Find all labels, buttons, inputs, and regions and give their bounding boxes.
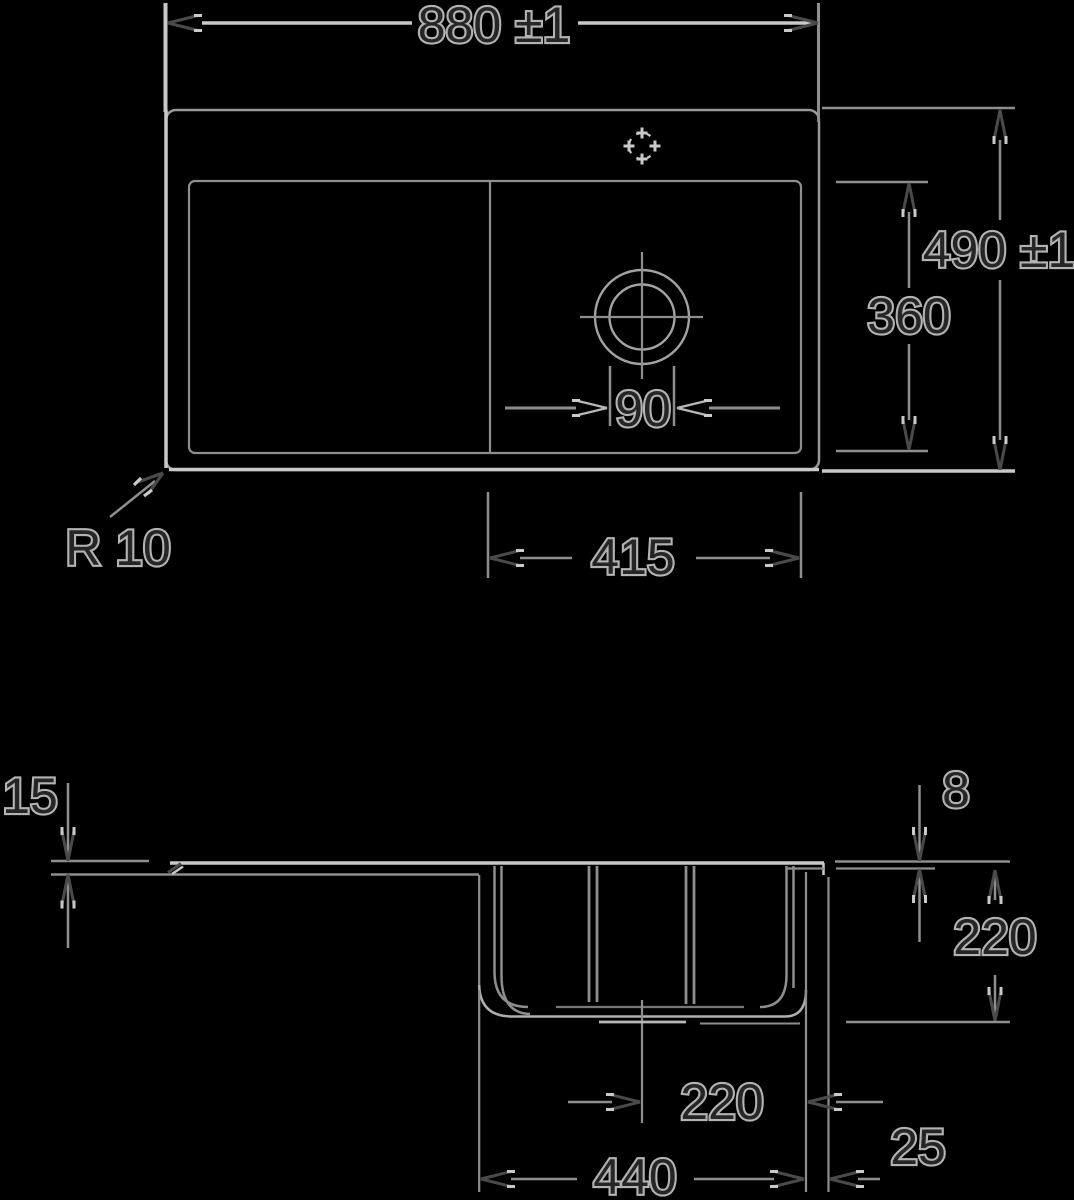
svg-text:880 ±1: 880 ±1 (418, 0, 571, 53)
svg-text:220: 220 (953, 909, 1036, 965)
svg-text:440: 440 (593, 1149, 676, 1200)
svg-text:490 ±1: 490 ±1 (923, 222, 1074, 278)
svg-text:415: 415 (591, 529, 674, 585)
svg-text:15: 15 (2, 768, 58, 824)
svg-text:220: 220 (680, 1074, 763, 1130)
svg-text:8: 8 (942, 762, 970, 818)
svg-text:360: 360 (867, 288, 950, 344)
svg-text:25: 25 (890, 1119, 946, 1175)
svg-text:R 10: R 10 (65, 520, 171, 576)
svg-text:90: 90 (615, 381, 671, 437)
